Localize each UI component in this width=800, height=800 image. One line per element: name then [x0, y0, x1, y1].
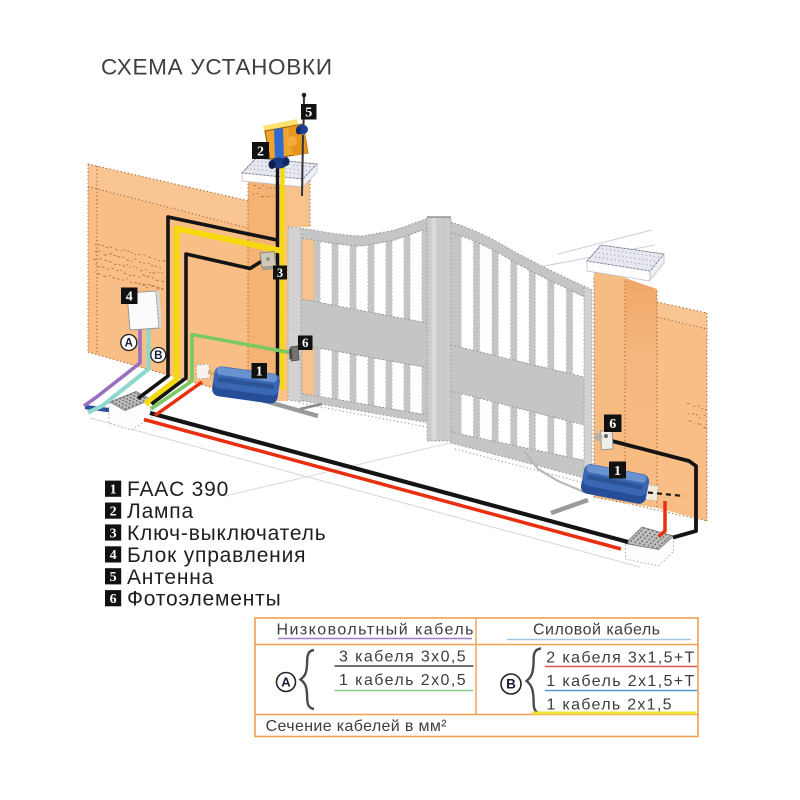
svg-text:А: А [281, 675, 291, 690]
svg-text:СХЕМА УСТАНОВКИ: СХЕМА УСТАНОВКИ [101, 55, 332, 80]
svg-text:В: В [506, 677, 516, 692]
svg-text:Силовой кабель: Силовой кабель [533, 622, 660, 639]
svg-text:1: 1 [614, 464, 621, 479]
svg-text:Лампа: Лампа [127, 500, 194, 523]
svg-text:4: 4 [110, 548, 117, 563]
svg-text:3: 3 [110, 526, 117, 541]
svg-text:4: 4 [126, 290, 133, 305]
svg-text:Ключ-выключатель: Ключ-выключатель [127, 522, 326, 545]
svg-text:B: B [154, 350, 162, 362]
svg-text:1 кабель 2х1,5: 1 кабель 2х1,5 [547, 697, 672, 714]
svg-text:Низковольтный кабель: Низковольтный кабель [277, 622, 474, 639]
svg-text:Фотоэлементы: Фотоэлементы [127, 588, 281, 611]
svg-text:6: 6 [110, 592, 117, 607]
svg-text:6: 6 [609, 417, 616, 432]
svg-text:5: 5 [305, 106, 312, 121]
svg-text:2: 2 [257, 144, 264, 159]
svg-text:Антенна: Антенна [127, 566, 214, 589]
svg-text:Блок управления: Блок управления [127, 544, 306, 567]
svg-text:FAAC 390: FAAC 390 [127, 478, 229, 501]
svg-text:6: 6 [302, 335, 309, 350]
svg-text:1: 1 [110, 483, 117, 498]
svg-text:1 кабель 2х1,5+Т: 1 кабель 2х1,5+Т [546, 673, 694, 690]
svg-text:A: A [125, 338, 133, 350]
svg-text:1: 1 [256, 365, 263, 380]
svg-text:5: 5 [110, 570, 117, 585]
svg-text:Сечение кабелей в мм²: Сечение кабелей в мм² [266, 718, 448, 735]
svg-text:2: 2 [110, 504, 117, 519]
svg-text:3: 3 [277, 266, 283, 280]
svg-text:3 кабеля 3х0,5: 3 кабеля 3х0,5 [339, 649, 466, 666]
svg-text:2 кабеля 3х1,5+Т: 2 кабеля 3х1,5+Т [546, 650, 694, 667]
svg-text:1 кабель 2х0,5: 1 кабель 2х0,5 [339, 672, 466, 689]
